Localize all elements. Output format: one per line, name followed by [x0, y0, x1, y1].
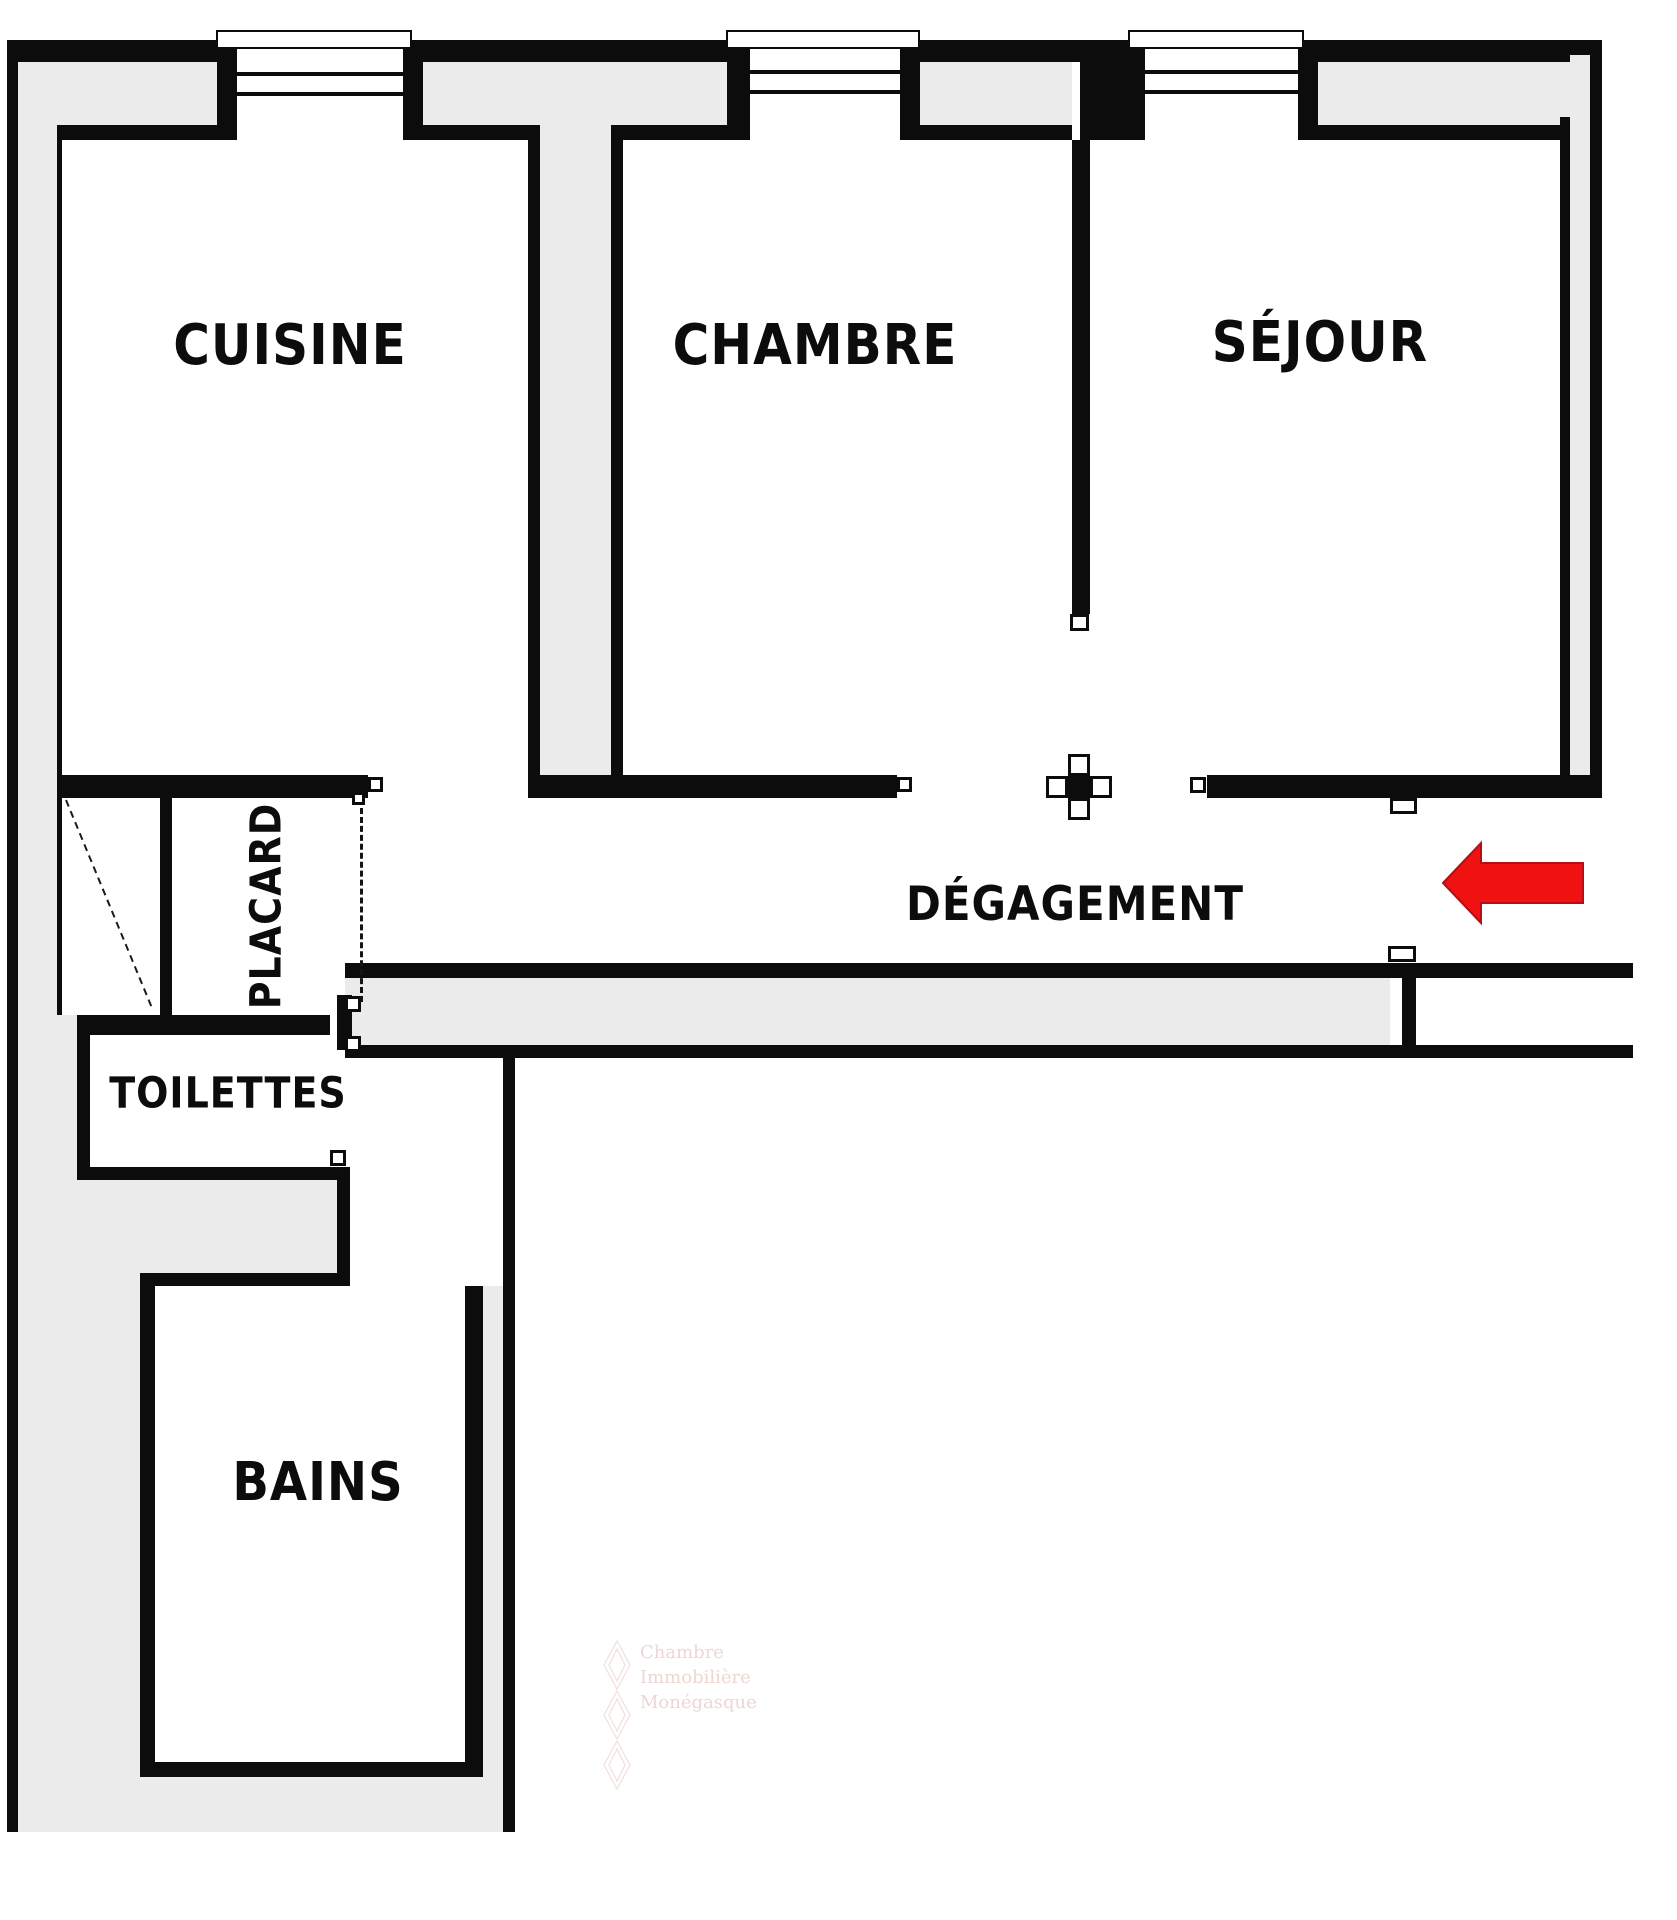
label-sejour: SÉJOUR [1170, 308, 1470, 375]
watermark-diamonds-icon [600, 1640, 634, 1790]
wall [1560, 117, 1570, 790]
door-marker [345, 1036, 361, 1052]
wall [503, 1057, 515, 1832]
wall-poche [540, 62, 611, 775]
wall-cuisine-chambre [528, 125, 540, 775]
wall [528, 775, 897, 798]
wall-chambre-sejour [1072, 140, 1090, 614]
door-marker [1190, 777, 1206, 793]
label-placard: PLACARD [238, 796, 294, 1016]
door-marker [368, 777, 383, 792]
wall [465, 1286, 483, 1777]
floor-plan: CUISINE CHAMBRE SÉJOUR DÉGAGEMENT PLACAR… [0, 0, 1677, 1920]
label-toilettes: TOILETTES [88, 1065, 368, 1121]
window-glazing [750, 90, 900, 94]
wall-poche [920, 62, 1072, 125]
door-marker [352, 792, 365, 805]
wall-poche [483, 1286, 503, 1832]
wall [345, 963, 1633, 978]
wall [1402, 963, 1416, 1058]
wall [403, 40, 750, 62]
door-marker [1388, 946, 1416, 962]
wall [900, 125, 1072, 140]
wall-poche [1570, 55, 1590, 790]
wall [1207, 775, 1602, 798]
window-chambre [726, 30, 920, 49]
wall [1298, 125, 1560, 140]
wall [403, 125, 530, 140]
wall [1298, 40, 1602, 62]
wall-poche [345, 978, 1390, 1045]
wall [1090, 125, 1145, 140]
watermark-text: Chambre Immobilière Monégasque [640, 1640, 757, 1715]
wall [140, 1273, 350, 1286]
wall [623, 125, 750, 140]
window-glazing [1145, 70, 1298, 74]
placard-opening-dashed-line [360, 808, 363, 1002]
label-degagement: DÉGAGEMENT [865, 872, 1285, 935]
door-marker [330, 1150, 346, 1166]
wall [140, 1762, 483, 1777]
door-marker [345, 996, 361, 1012]
door-marker [1390, 798, 1417, 814]
label-chambre: CHAMBRE [645, 311, 985, 378]
entrance-arrow-icon [1441, 835, 1586, 927]
watermark: Chambre Immobilière Monégasque [600, 1640, 757, 1790]
wall-cuisine-chambre [611, 125, 623, 775]
door-marker [1070, 614, 1089, 631]
wall [345, 1045, 1633, 1058]
wall [140, 1273, 155, 1777]
label-cuisine: CUISINE [140, 311, 440, 378]
label-bains: BAINS [198, 1447, 438, 1516]
door-pivot-icon [1046, 754, 1112, 820]
wall [1590, 40, 1602, 790]
window-glazing [1145, 90, 1298, 94]
wall-poche [18, 1180, 337, 1273]
wall-poche [1318, 62, 1570, 125]
door-marker [897, 777, 912, 792]
wall [337, 1167, 350, 1273]
window-glazing [750, 70, 900, 74]
wall-poche [140, 1777, 503, 1832]
window-sejour [1128, 30, 1304, 49]
wall [77, 1167, 337, 1180]
